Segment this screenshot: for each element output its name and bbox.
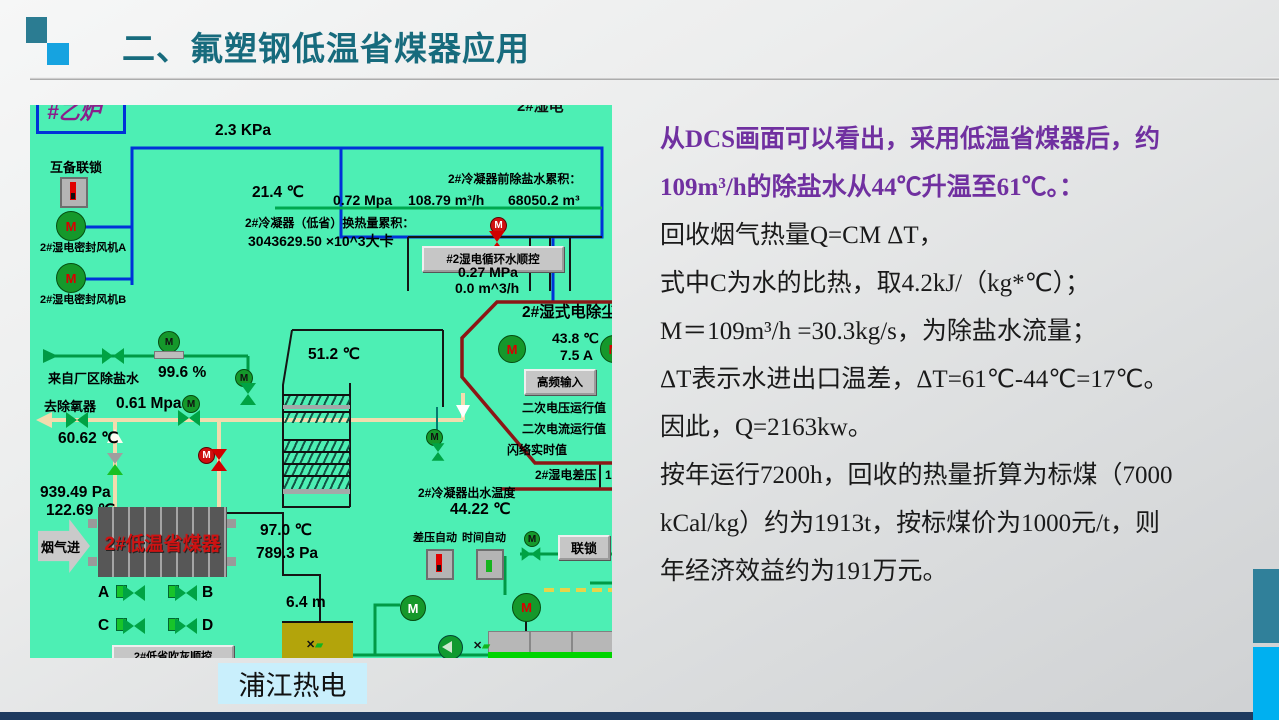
water-valve-icon[interactable] [102,348,124,364]
clipped-top-text: 2#湿电 [517,105,612,113]
slide: 二、氟塑钢低温省煤器应用 2#湿电 # [0,0,1279,720]
analysis-line: ΔT表示水进出口温差，ΔT=61℃-44℃=17℃。 [660,356,1260,404]
fan-b-motor-icon[interactable]: M [56,263,86,293]
pump-icon[interactable] [438,635,463,658]
mpa-061: 0.61 Mpa [116,396,181,412]
temp-438: 43.8 ℃ [552,331,599,346]
interlock-mvalve-motor-icon[interactable]: M [524,531,540,547]
pa-939: 939.49 Pa [40,485,111,501]
pump-motor-right-icon[interactable]: M [512,593,541,622]
time-auto-label: 时间自动 [462,533,506,545]
analysis-highlight-line: 109m³/h的除盐水从44℃升温至61℃。： [660,164,1260,212]
fan-a-motor-icon[interactable]: M [56,211,86,241]
sec-current-label: 二次电流运行值 [522,423,606,436]
flue-gas-in-label: 烟气进 [41,537,80,556]
flow-10879: 108.79 m³/h [408,193,484,208]
temp-4422: 44.22 ℃ [450,502,511,518]
analysis-line: M＝109m³/h =30.3kg/s，为除盐水流量； [660,308,1260,356]
heat-accum-value: 3043629.50 ×10^3大卡 [248,234,394,249]
analysis-line: 因此，Q=2163kw。 [660,404,1260,452]
pump-motor-icon[interactable]: M [158,331,180,353]
analysis-line: 式中C为水的比热，取4.2kJ/（kg*℃）； [660,260,1260,308]
analysis-text: 从DCS画面可以看出，采用低温省煤器后，约 109m³/h的除盐水从44℃升温至… [660,116,1260,596]
pressure-top-value: 2.3 KPa [215,123,271,139]
header-divider [30,77,1279,80]
sec-voltage-label: 二次电压运行值 [522,402,606,415]
pa-789: 789.3 Pa [256,546,318,562]
analysis-highlight-line: 从DCS画面可以看出，采用低温省煤器后，约 [660,116,1260,164]
esp-motor-left-icon[interactable]: M [498,335,526,363]
mvalve2-icon[interactable] [178,410,200,426]
edge-accent-teal [1253,569,1279,643]
x-valve-right-icon[interactable] [473,639,490,652]
valve-a-icon[interactable] [123,585,145,601]
dp-auto-label: 差压自动 [413,533,457,545]
yellow-dashed-line [544,588,612,592]
heat-accum-title: 2#冷凝器（低省）换热量累积： [245,217,414,230]
valve-a-label: A [98,585,109,601]
boiler-tag: #乙炉 [47,105,101,126]
valve-b-icon[interactable] [175,585,197,601]
interlock-toggle-icon[interactable] [60,177,88,208]
analysis-line: 年经济效益约为191万元。 [660,548,1260,596]
esp-dp-label: 2#湿电差压 [535,469,596,482]
red-mvalve-icon[interactable] [211,449,227,471]
level-64: 6.4 m [286,595,326,611]
bottom-bar [0,712,1279,720]
esp-title: 2#湿式电除尘 [522,305,612,321]
hf-input-button[interactable]: 高频输入 [524,369,596,395]
green-strip [488,652,612,658]
mvalve1-icon[interactable] [240,383,256,405]
page-title: 二、氟塑钢低温省煤器应用 [122,22,530,70]
dcs-screenshot[interactable]: 2#湿电 #乙炉 2.3 KPa 互备联锁 M 2#湿电密封风机A M 2#湿电… [30,105,612,658]
flow-00: 0.0 m^3/h [455,281,519,296]
edge-accent-blue [1253,647,1279,720]
valve-d-label: D [202,618,213,634]
fan-b-label: 2#湿电密封风机B [40,295,126,307]
mpa-027: 0.27 MPa [458,265,518,280]
interlock-mvalve-icon[interactable] [522,547,541,561]
mpa-072: 0.72 Mpa [333,193,392,208]
accum-value: 68050.2 m³ [508,193,580,208]
economizer-block[interactable]: 2#低温省煤器 [98,507,227,577]
interlock-button[interactable]: 联锁 [558,535,610,560]
deaerator-valve-icon[interactable] [66,412,88,428]
valve-d-icon[interactable] [175,618,197,634]
valve-b-label: B [202,585,213,601]
boiler-tag-box: #乙炉 [36,105,126,134]
x-valve-left-icon[interactable] [306,638,323,651]
dp-auto-toggle-icon[interactable] [426,549,454,580]
flashover-label: 闪络实时值 [507,444,567,457]
purge-seq-button[interactable]: 2#低省吹灰顺控 [112,645,234,658]
caption-badge: 浦江热电 [218,663,367,704]
temp-214: 21.4 ℃ [252,185,304,201]
accum-title: 2#冷凝器前除盐水累积： [448,173,581,186]
fan-a-label: 2#湿电密封风机A [40,243,126,255]
gray-green-valve-icon[interactable] [107,453,123,475]
deco-square-blue [47,43,69,65]
temp-6062: 60.62 ℃ [58,431,119,447]
esp-dp-value: 1 [605,469,612,482]
valve-c-icon[interactable] [123,618,145,634]
deco-square-teal [26,17,47,43]
amp-75: 7.5 A [560,348,593,363]
valve-c-label: C [98,618,109,634]
analysis-line: 回收烟气热量Q=CM ΔT， [660,212,1260,260]
vessel-mvalve-icon[interactable] [432,443,445,461]
temp-970: 97.0 ℃ [260,523,312,539]
analysis-line: kCal/kg）约为1913t，按标煤价为1000元/t，则 [660,500,1260,548]
outlet-temp-title: 2#冷凝器出水温度 [418,487,515,500]
pump-motor-mid-icon[interactable]: M [400,595,426,621]
mutual-interlock-label: 互备联锁 [50,161,102,175]
analysis-line: 按年运行7200h，回收的热量折算为标煤（7000 [660,452,1260,500]
percent-996: 99.6 % [158,365,206,381]
from-plant-label: 来自厂区除盐水 [48,372,139,386]
time-auto-toggle-icon[interactable] [476,549,504,580]
temp-512: 51.2 ℃ [308,347,360,363]
